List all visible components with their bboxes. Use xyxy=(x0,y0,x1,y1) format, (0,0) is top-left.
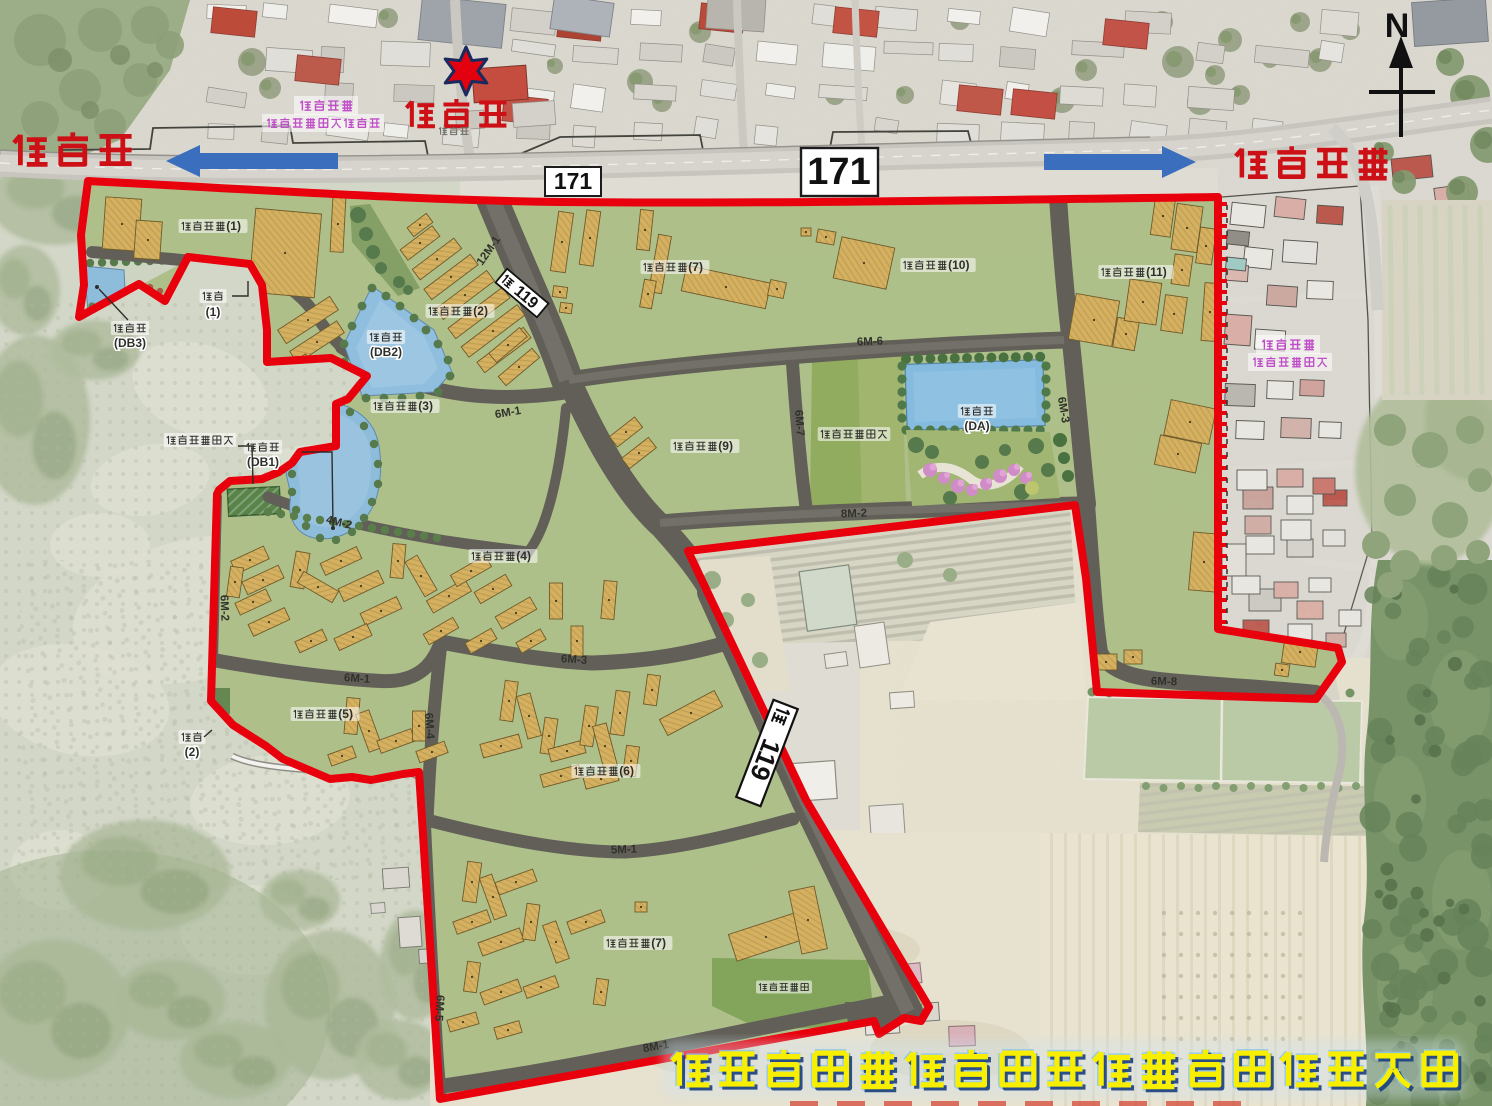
svg-text:(4): (4) xyxy=(516,549,531,563)
svg-text:(2): (2) xyxy=(185,745,200,759)
svg-text:N: N xyxy=(1385,7,1410,45)
svg-text:6M-8: 6M-8 xyxy=(1151,676,1178,689)
svg-text:(5): (5) xyxy=(338,707,353,721)
svg-text:(10): (10) xyxy=(948,258,969,272)
svg-text:(7): (7) xyxy=(651,936,666,950)
svg-text:(7): (7) xyxy=(688,260,703,274)
svg-text:6M-6: 6M-6 xyxy=(857,336,884,349)
svg-text:5M-1: 5M-1 xyxy=(611,844,638,857)
svg-text:6M-7: 6M-7 xyxy=(792,410,806,437)
svg-text:(9): (9) xyxy=(718,439,733,453)
svg-text:(6): (6) xyxy=(619,764,634,778)
svg-text:6M-2: 6M-2 xyxy=(218,595,231,622)
svg-text:(3): (3) xyxy=(418,399,433,413)
svg-text:(DB3): (DB3) xyxy=(114,336,146,350)
svg-text:(DB2): (DB2) xyxy=(370,345,402,359)
svg-text:8M-2: 8M-2 xyxy=(841,508,868,521)
svg-text:(1): (1) xyxy=(206,305,221,319)
svg-text:171: 171 xyxy=(554,168,593,194)
svg-text:6M-5: 6M-5 xyxy=(432,995,446,1023)
svg-text:(1): (1) xyxy=(226,219,241,233)
svg-text:(11): (11) xyxy=(1146,265,1167,279)
svg-text:(2): (2) xyxy=(473,304,488,318)
svg-text:6M-1: 6M-1 xyxy=(344,672,372,686)
svg-text:6M-3: 6M-3 xyxy=(561,653,588,667)
svg-text:(DA): (DA) xyxy=(964,419,989,433)
svg-text:6M-4: 6M-4 xyxy=(422,713,436,741)
svg-text:171: 171 xyxy=(807,151,870,193)
